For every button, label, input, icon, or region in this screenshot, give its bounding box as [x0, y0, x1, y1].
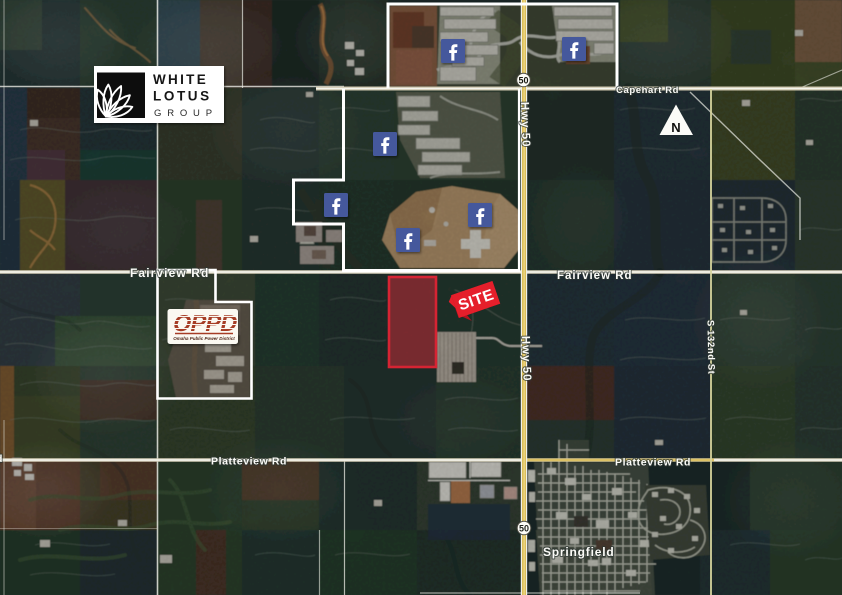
svg-text:GROUP: GROUP — [154, 108, 218, 119]
svg-text:OPPD: OPPD — [171, 310, 240, 336]
svg-text:50: 50 — [519, 524, 529, 534]
svg-text:Fairview Rd: Fairview Rd — [130, 266, 209, 280]
svg-text:Omaha Public Power District: Omaha Public Power District — [173, 336, 235, 341]
svg-text:N: N — [671, 120, 680, 135]
svg-text:Springfield: Springfield — [543, 545, 614, 559]
svg-text:d: d — [0, 453, 3, 465]
svg-text:Platteview Rd: Platteview Rd — [615, 457, 691, 469]
svg-text:S 132nd St: S 132nd St — [705, 320, 717, 375]
svg-text:50: 50 — [518, 75, 528, 85]
svg-text:Hwy 50: Hwy 50 — [518, 102, 532, 148]
svg-text:Capehart Rd: Capehart Rd — [616, 85, 679, 96]
svg-text:Fairview Rd: Fairview Rd — [557, 270, 633, 282]
svg-text:LOTUS: LOTUS — [153, 89, 212, 104]
svg-text:WHITE: WHITE — [153, 72, 208, 87]
svg-text:Platteview Rd: Platteview Rd — [211, 456, 287, 468]
svg-text:Hwy 50: Hwy 50 — [519, 336, 533, 382]
